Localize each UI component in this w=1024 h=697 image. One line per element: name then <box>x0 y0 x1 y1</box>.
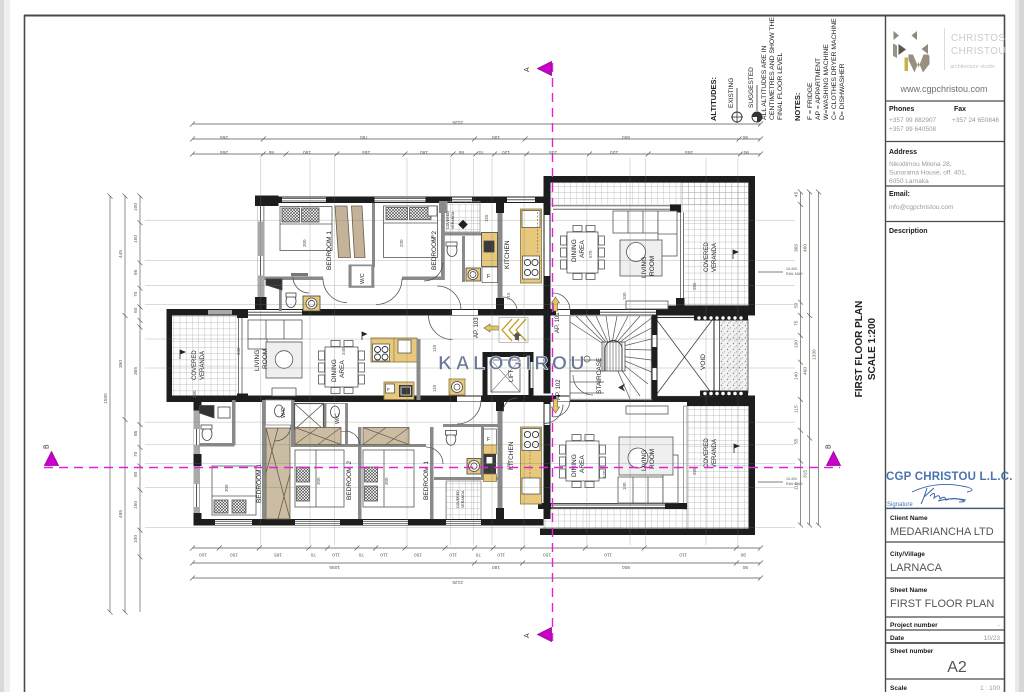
svg-text:2125: 2125 <box>452 579 463 585</box>
svg-text:255: 255 <box>362 149 370 155</box>
svg-text:2125: 2125 <box>452 119 463 125</box>
svg-text:85: 85 <box>458 149 464 155</box>
svg-text:VERANDA: VERANDA <box>461 490 465 508</box>
svg-text:120: 120 <box>502 149 510 155</box>
svg-text:90: 90 <box>133 471 139 477</box>
svg-text:City/Village: City/Village <box>890 551 925 558</box>
svg-text:6050 Larnaka: 6050 Larnaka <box>889 178 929 185</box>
svg-text:Date: Date <box>890 635 904 642</box>
svg-text:1330: 1330 <box>812 349 818 360</box>
svg-text:100: 100 <box>506 462 511 470</box>
svg-text:F: F <box>387 387 390 392</box>
svg-text:W/C: W/C <box>281 407 287 418</box>
svg-text:Client Name: Client Name <box>890 515 928 522</box>
svg-text:W/C: W/C <box>335 413 341 424</box>
svg-text:COVERED: COVERED <box>192 350 198 380</box>
svg-text:180: 180 <box>420 149 428 155</box>
svg-text:300: 300 <box>316 477 321 485</box>
svg-text:C= CLOTHES DRYER MACHINE: C= CLOTHES DRYER MACHINE <box>831 18 838 120</box>
svg-text:10/23: 10/23 <box>984 635 1001 642</box>
svg-text:110: 110 <box>432 384 437 392</box>
svg-text:DINING: DINING <box>571 454 578 477</box>
svg-text:100: 100 <box>133 535 139 543</box>
svg-text:180: 180 <box>492 564 500 570</box>
svg-text:CENTIMETRES AND SHOW THE: CENTIMETRES AND SHOW THE <box>769 17 776 120</box>
svg-text:KALOGIROU: KALOGIROU <box>438 353 588 375</box>
svg-text:90: 90 <box>742 134 748 140</box>
svg-text:70: 70 <box>310 552 316 558</box>
svg-text:SCALE 1:200: SCALE 1:200 <box>867 317 878 380</box>
svg-text:B: B <box>44 444 51 449</box>
svg-text:Project number: Project number <box>890 622 938 629</box>
svg-text:265: 265 <box>220 134 228 140</box>
svg-text:Sheet Name: Sheet Name <box>890 587 928 594</box>
svg-text:W=WASHING MACHINE: W=WASHING MACHINE <box>823 44 830 120</box>
svg-text:www.cgpchristou.com: www.cgpchristou.com <box>899 84 987 94</box>
svg-text:50: 50 <box>794 302 800 308</box>
svg-text:70: 70 <box>133 451 139 457</box>
svg-text:110: 110 <box>497 552 505 558</box>
svg-text:COVERED: COVERED <box>456 490 460 508</box>
svg-text:175: 175 <box>430 234 435 242</box>
svg-text:570: 570 <box>588 250 593 258</box>
svg-text:AP. 103: AP. 103 <box>474 317 480 338</box>
svg-text:FIRST FLOOR PLAN: FIRST FLOOR PLAN <box>854 301 865 398</box>
svg-text:95: 95 <box>133 269 139 275</box>
svg-text:345: 345 <box>685 149 693 155</box>
svg-text:CHRISTOS: CHRISTOS <box>951 33 1005 44</box>
svg-text:90: 90 <box>740 552 746 558</box>
svg-text:BEDROOM 2: BEDROOM 2 <box>346 461 353 500</box>
svg-text:75: 75 <box>794 320 800 326</box>
svg-text:570: 570 <box>602 470 607 478</box>
svg-text:100: 100 <box>794 340 800 348</box>
svg-text:FINAL FLOOR LEVEL: FINAL FLOOR LEVEL <box>777 52 784 120</box>
svg-text:BEDROOM 1: BEDROOM 1 <box>326 231 333 270</box>
svg-text:EXISTING: EXISTING <box>728 78 735 108</box>
svg-text:300: 300 <box>384 477 389 485</box>
svg-text:155: 155 <box>484 214 489 222</box>
svg-text:info@cgpchristou.com: info@cgpchristou.com <box>889 204 953 211</box>
svg-text:Signature: Signature <box>887 502 913 508</box>
svg-text:F = FRIDGE: F = FRIDGE <box>807 82 814 120</box>
svg-text:F: F <box>487 437 490 443</box>
svg-text:85: 85 <box>133 430 139 436</box>
svg-text:110: 110 <box>380 552 388 558</box>
svg-text:LIVING: LIVING <box>641 257 648 278</box>
svg-text:190: 190 <box>492 134 500 140</box>
svg-text:340: 340 <box>236 347 241 355</box>
svg-text:DINING: DINING <box>571 239 578 262</box>
svg-text:1055: 1055 <box>329 564 340 570</box>
svg-text:AREA: AREA <box>579 455 586 473</box>
svg-text:AREA: AREA <box>339 360 346 378</box>
svg-text:110: 110 <box>604 552 612 558</box>
svg-text:1 : 100: 1 : 100 <box>980 685 1000 692</box>
svg-text:AP = APPARTMENT: AP = APPARTMENT <box>815 58 822 120</box>
svg-text:330: 330 <box>399 239 404 247</box>
svg-text:300: 300 <box>302 239 307 247</box>
svg-text:70: 70 <box>478 149 484 155</box>
svg-text:ROOM: ROOM <box>262 349 269 369</box>
svg-text:CGP CHRISTOU L.L.C.: CGP CHRISTOU L.L.C. <box>886 471 1013 483</box>
svg-text:Phones: Phones <box>889 106 914 113</box>
svg-text:A: A <box>524 67 531 72</box>
svg-text:110: 110 <box>332 552 340 558</box>
svg-text:ALTITUDES:: ALTITUDES: <box>709 77 718 121</box>
svg-text:365: 365 <box>794 244 800 252</box>
svg-text:100: 100 <box>622 292 627 300</box>
svg-text:185: 185 <box>274 552 282 558</box>
svg-text:50: 50 <box>133 307 139 313</box>
svg-text:340: 340 <box>341 347 346 355</box>
svg-text:300: 300 <box>224 484 229 492</box>
svg-text:CHRISTOU: CHRISTOU <box>951 46 1006 57</box>
svg-text:STAIRCASE: STAIRCASE <box>596 357 603 394</box>
svg-text:265: 265 <box>220 149 228 155</box>
svg-text:BEDROOM 1: BEDROOM 1 <box>256 464 263 503</box>
svg-text:85: 85 <box>268 149 274 155</box>
svg-text:10.400: 10.400 <box>786 267 797 271</box>
svg-text:365: 365 <box>133 367 139 375</box>
svg-text:NOTES:: NOTES: <box>793 93 802 121</box>
svg-text:LARNACA: LARNACA <box>890 562 943 574</box>
svg-text:SUGGESTED: SUGGESTED <box>748 67 755 108</box>
svg-text:Sheet number: Sheet number <box>890 648 934 655</box>
svg-text:45: 45 <box>794 191 800 197</box>
svg-text:315: 315 <box>803 470 809 478</box>
svg-text:ROOM: ROOM <box>649 256 656 276</box>
svg-text:Email:: Email: <box>889 191 910 198</box>
svg-text:COVERED: COVERED <box>704 242 710 272</box>
svg-text:460: 460 <box>803 244 809 252</box>
svg-text:70: 70 <box>358 552 364 558</box>
svg-text:390: 390 <box>118 360 124 368</box>
svg-text:790: 790 <box>360 134 368 140</box>
svg-text:VERANDA: VERANDA <box>712 243 718 272</box>
svg-text:BEDROOM 1: BEDROOM 1 <box>423 461 430 500</box>
svg-text:Nikodimou Milona 28,: Nikodimou Milona 28, <box>889 161 952 168</box>
svg-text:FIRST FLOOR PLAN: FIRST FLOOR PLAN <box>890 598 994 610</box>
svg-text:110: 110 <box>679 552 687 558</box>
svg-text:110: 110 <box>432 344 437 352</box>
svg-text:+357 99 882907: +357 99 882907 <box>889 117 937 124</box>
svg-text:445: 445 <box>118 250 124 258</box>
svg-text:D= DISHWASHER: D= DISHWASHER <box>839 63 846 120</box>
svg-text:150: 150 <box>543 552 551 558</box>
svg-text:RAIL MAX: RAIL MAX <box>786 272 803 276</box>
svg-text:495: 495 <box>118 510 124 518</box>
svg-text:AP. 101: AP. 101 <box>555 312 561 333</box>
svg-text:A2: A2 <box>947 659 967 676</box>
svg-text:RAIL MAX: RAIL MAX <box>786 482 803 486</box>
svg-text:Scale: Scale <box>890 685 907 692</box>
svg-text:100: 100 <box>199 552 207 558</box>
svg-text:1590: 1590 <box>103 393 109 404</box>
svg-text:VERANDA: VERANDA <box>200 351 206 380</box>
svg-text:150: 150 <box>230 552 238 558</box>
svg-text:B: B <box>826 444 833 449</box>
svg-text:70: 70 <box>475 552 481 558</box>
svg-text:+357 99 640508: +357 99 640508 <box>889 126 937 133</box>
svg-text:110: 110 <box>449 552 457 558</box>
svg-text:70: 70 <box>133 291 139 297</box>
svg-text:-: - <box>998 622 1000 629</box>
svg-text:115: 115 <box>794 405 800 413</box>
svg-text:COVERED: COVERED <box>446 211 450 229</box>
svg-text:MEDARIANCHA LTD: MEDARIANCHA LTD <box>890 526 994 538</box>
svg-text:285: 285 <box>692 282 697 290</box>
svg-text:10.400: 10.400 <box>786 477 797 481</box>
svg-text:+357 24 650846: +357 24 650846 <box>952 117 1000 124</box>
svg-text:100: 100 <box>133 203 139 211</box>
svg-text:100: 100 <box>622 482 627 490</box>
svg-text:220: 220 <box>610 149 618 155</box>
svg-text:300: 300 <box>192 390 197 398</box>
svg-text:W/C: W/C <box>360 273 366 284</box>
svg-text:90: 90 <box>742 564 748 570</box>
svg-text:140: 140 <box>794 372 800 380</box>
svg-text:800: 800 <box>622 564 630 570</box>
svg-text:Address: Address <box>889 149 917 156</box>
svg-text:150: 150 <box>133 235 139 243</box>
svg-text:Fax: Fax <box>954 106 966 113</box>
svg-text:800: 800 <box>622 134 630 140</box>
svg-text:90: 90 <box>743 149 749 155</box>
svg-text:Description: Description <box>889 228 928 235</box>
svg-text:ROOM: ROOM <box>649 449 656 469</box>
svg-text:ALL ALTITUDES ARE IN: ALL ALTITUDES ARE IN <box>761 45 768 120</box>
svg-text:190: 190 <box>303 149 311 155</box>
svg-text:55: 55 <box>794 438 800 444</box>
svg-text:460: 460 <box>803 367 809 375</box>
svg-text:AP. 102: AP. 102 <box>556 379 562 400</box>
svg-text:150: 150 <box>133 501 139 509</box>
svg-text:architecture studio: architecture studio <box>950 64 995 70</box>
svg-text:A: A <box>524 633 531 638</box>
svg-text:AREA: AREA <box>579 240 586 258</box>
svg-text:Sunorama House, off. 401,: Sunorama House, off. 401, <box>889 170 967 177</box>
svg-text:KITCHEN: KITCHEN <box>504 240 511 269</box>
svg-text:150: 150 <box>414 552 422 558</box>
